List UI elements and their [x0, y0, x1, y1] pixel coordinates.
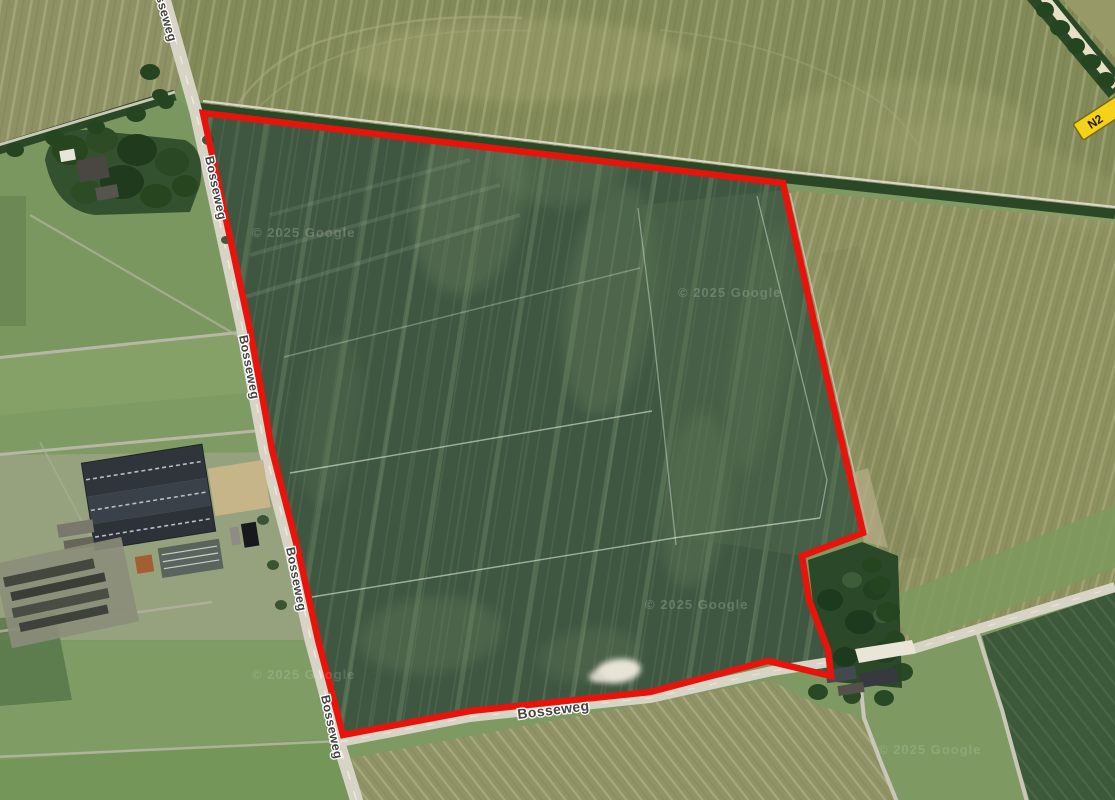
tree-cluster-farmhouse: [45, 127, 201, 215]
farm-house: [135, 554, 154, 573]
map-canvas: Bosseweg Bosseweg Bosseweg Bosseweg Boss…: [0, 0, 1115, 800]
satellite-map-image: Bosseweg Bosseweg Bosseweg Bosseweg Boss…: [0, 0, 1115, 800]
map-attribution-watermark: © 2025 Google: [252, 225, 356, 240]
paddock: [208, 460, 271, 516]
map-attribution-watermark: © 2025 Google: [878, 742, 982, 757]
map-attribution-watermark: © 2025 Google: [678, 285, 782, 300]
map-attribution-watermark: © 2025 Google: [252, 667, 356, 682]
farm-barn: [81, 444, 215, 550]
map-attribution-watermark: © 2025 Google: [645, 597, 749, 612]
